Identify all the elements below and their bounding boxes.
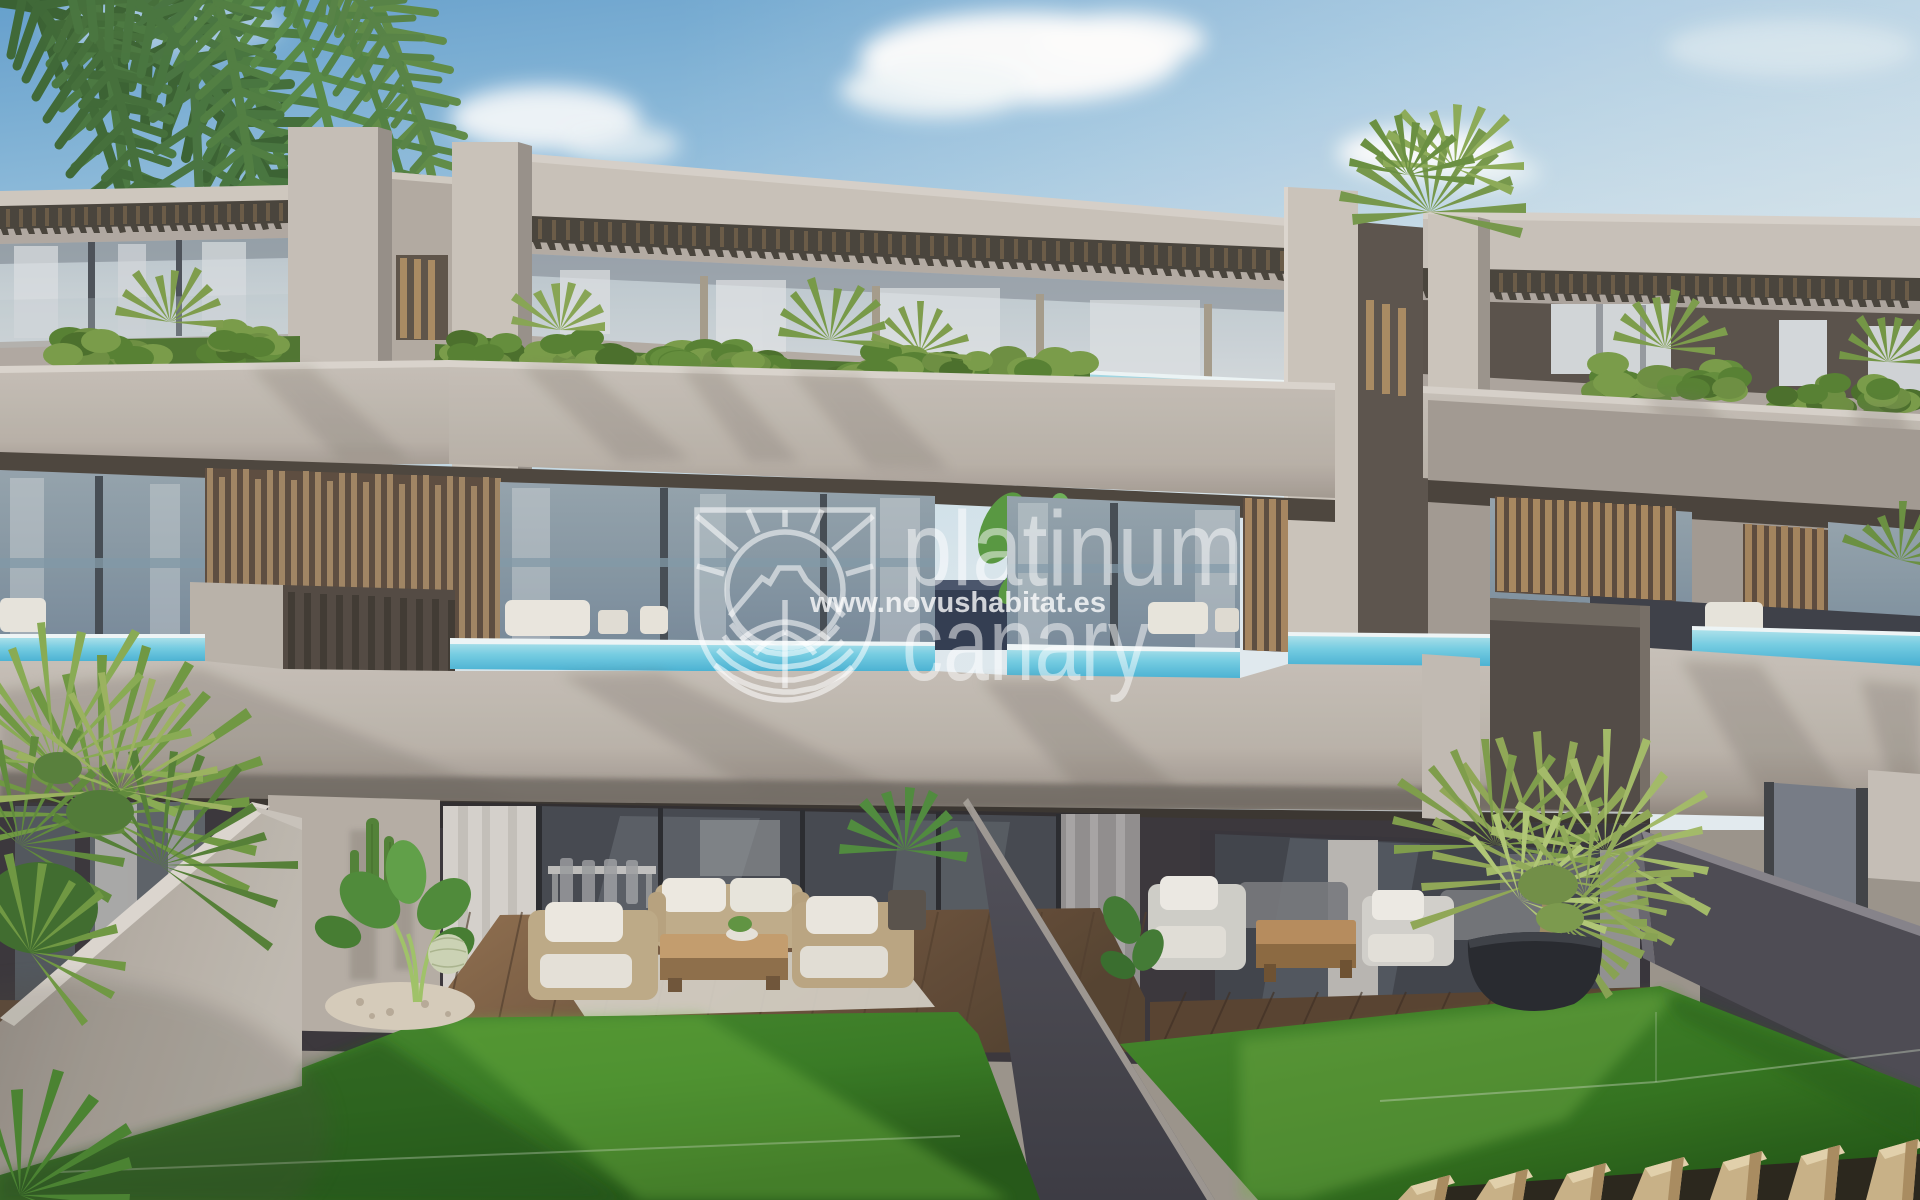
svg-text:www.novushabitat.es: www.novushabitat.es bbox=[809, 587, 1106, 619]
